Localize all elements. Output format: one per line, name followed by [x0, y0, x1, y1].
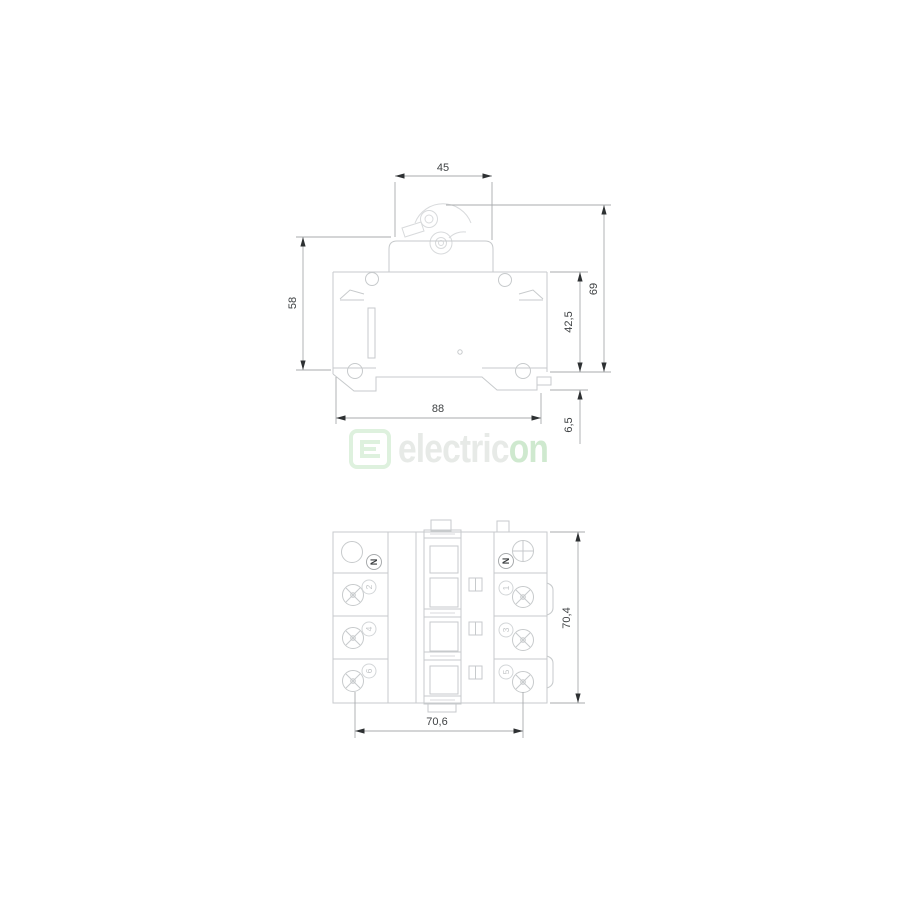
terminal-label-3: 3: [501, 627, 511, 632]
clip-hook-right: [519, 290, 543, 300]
center-pin: [458, 350, 462, 354]
top-step: [497, 521, 509, 532]
logo-word-primary: electric: [398, 427, 509, 471]
terminal-screws: [343, 585, 534, 693]
terminal-label-n-right: N: [501, 558, 511, 565]
dim-label-rail-depth: 6,5: [563, 417, 575, 432]
edge-tab: [547, 583, 553, 615]
terminal-label-5: 5: [501, 669, 511, 674]
dim-label-total-height: 69: [588, 283, 600, 295]
housing-rivet: [366, 273, 379, 286]
dim-label-top-width: 45: [437, 162, 449, 174]
terminal-label-4: 4: [364, 626, 374, 631]
toggle-lever-detail: [402, 204, 471, 254]
side-view-drawing: [333, 204, 551, 391]
drawing-canvas: 45 58 69 42,5 88 6,5 electricon: [0, 0, 900, 900]
dim-label-depth: 70,4: [561, 607, 573, 628]
bottom-view-dim-labels: 70,4 70,6: [426, 607, 573, 728]
drawing-page: 45 58 69 42,5 88 6,5 electricon: [0, 0, 900, 900]
terminal-label-n-left: N: [369, 559, 379, 566]
edge-tab: [547, 656, 553, 688]
din-clip-tab: [537, 377, 551, 385]
terminal-label-1: 1: [501, 585, 511, 590]
dim-label-terminal-span: 70,6: [426, 716, 447, 728]
clip-hook-left: [340, 290, 364, 300]
logo-wordmark: electricon: [398, 427, 548, 471]
dim-label-body-height: 42,5: [563, 311, 575, 332]
brand-logo: electricon: [351, 427, 548, 471]
bottom-view-drawing: [333, 520, 553, 712]
side-view-dim-labels: 45 58 69 42,5 88 6,5: [287, 162, 600, 433]
dim-label-base-width: 88: [432, 403, 444, 415]
terminal-label-2: 2: [364, 584, 374, 589]
housing-rivet: [516, 364, 531, 379]
housing-rivet: [348, 364, 363, 379]
label-slot: [368, 308, 375, 358]
vent-windows: [469, 578, 482, 679]
center-rail-channel: [416, 520, 461, 712]
dim-label-left-height: 58: [287, 297, 299, 309]
body-bottom-clips: [333, 368, 547, 391]
terminal-label-6: 6: [364, 668, 374, 673]
logo-mark-e-icon: [360, 440, 380, 458]
logo-word-accent: on: [509, 427, 548, 471]
body-outline: [333, 272, 547, 374]
side-view-dimensions: [296, 176, 611, 444]
housing-rivet: [499, 274, 512, 287]
neutral-terminal-hole-left: [342, 542, 363, 563]
